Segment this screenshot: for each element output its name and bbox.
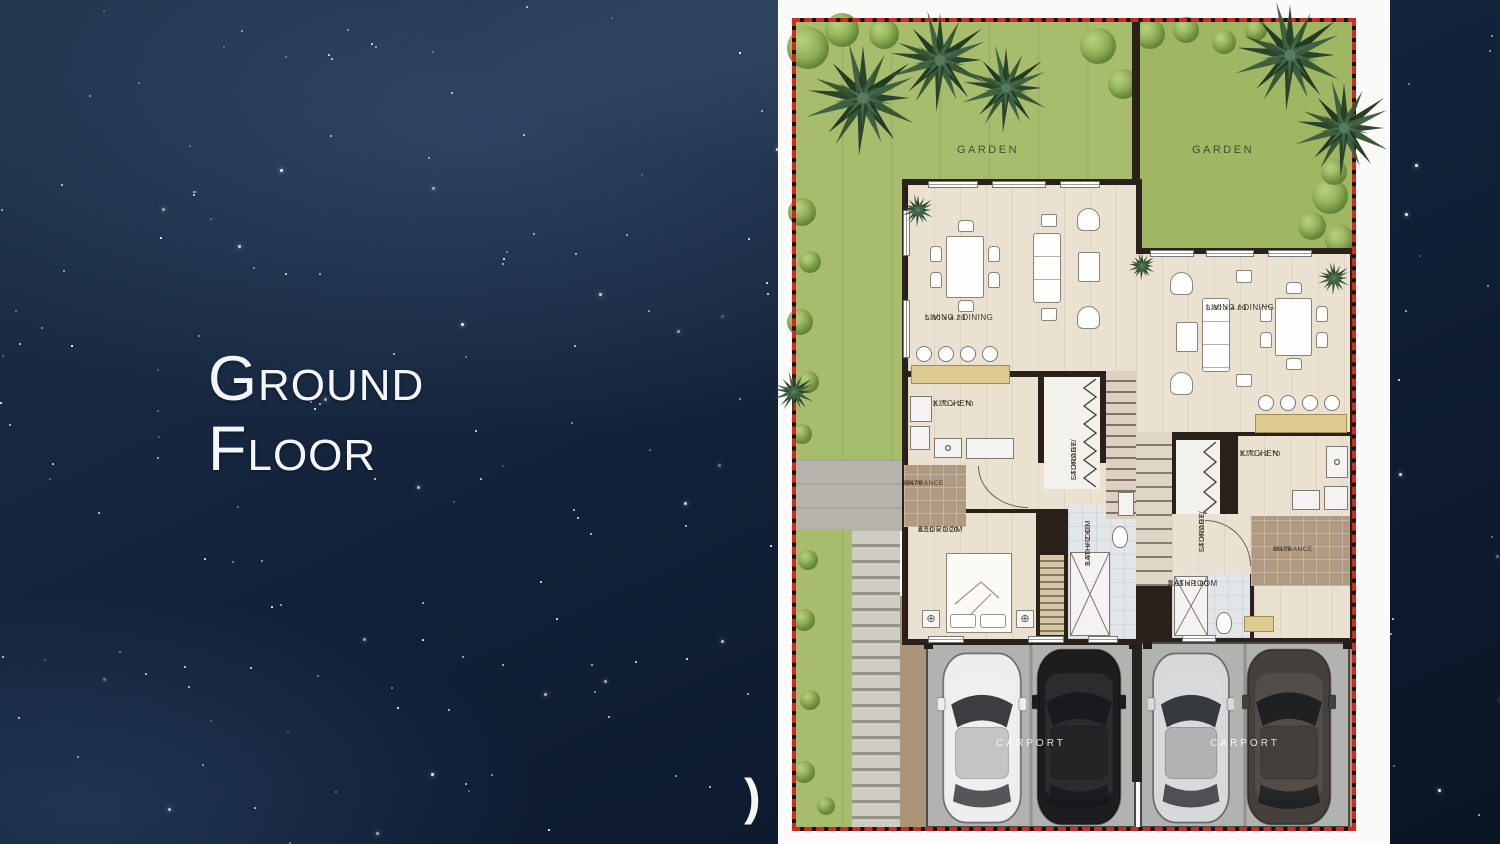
armchair xyxy=(1170,272,1193,295)
sofa-left xyxy=(1033,233,1061,303)
star xyxy=(431,773,434,776)
star xyxy=(204,558,206,560)
armchair xyxy=(1077,306,1100,329)
star xyxy=(44,659,46,661)
star xyxy=(451,92,453,94)
star xyxy=(237,506,239,508)
star xyxy=(721,640,724,643)
star xyxy=(119,651,121,653)
star xyxy=(544,693,547,696)
dining-chair xyxy=(958,300,974,312)
star xyxy=(1405,310,1407,312)
floor-plan: ⊕ ⊕ xyxy=(778,0,1390,844)
star xyxy=(502,664,504,666)
star xyxy=(1491,536,1493,538)
carport-divider-wall xyxy=(1132,642,1142,782)
star xyxy=(1491,35,1493,37)
vanity-right xyxy=(1244,616,1274,632)
star xyxy=(465,783,467,785)
star xyxy=(767,293,769,295)
star xyxy=(188,686,190,688)
star xyxy=(1415,164,1418,167)
entrance-walkway-left xyxy=(795,459,909,531)
window xyxy=(903,210,910,256)
toilet-right xyxy=(1216,612,1232,634)
fridge-left xyxy=(910,396,932,422)
star xyxy=(250,667,252,669)
star xyxy=(677,330,680,333)
star xyxy=(375,46,377,48)
window xyxy=(903,300,910,358)
star xyxy=(98,512,100,514)
star xyxy=(330,135,332,137)
star xyxy=(376,832,379,835)
dining-chair xyxy=(988,272,1000,288)
star xyxy=(626,234,628,236)
garden-lower-left xyxy=(795,529,852,828)
star xyxy=(41,327,43,329)
stray-glyph-fragment: ) xyxy=(744,768,761,826)
star xyxy=(280,604,282,606)
dining-table-left xyxy=(946,236,984,298)
star xyxy=(1419,255,1421,257)
dining-chair xyxy=(930,272,942,288)
star xyxy=(1438,789,1441,792)
star xyxy=(317,675,319,677)
star xyxy=(319,273,321,275)
star xyxy=(371,43,373,45)
window xyxy=(1182,635,1216,642)
bar-stool xyxy=(916,346,932,362)
dining-chair xyxy=(1316,306,1328,322)
kitchen-sink-right xyxy=(1292,490,1320,510)
star xyxy=(1489,50,1491,52)
star xyxy=(506,251,508,253)
dining-chair xyxy=(958,220,974,232)
pillow xyxy=(980,614,1006,628)
star xyxy=(604,680,607,683)
star xyxy=(739,52,741,54)
star xyxy=(103,678,106,681)
star xyxy=(594,691,596,693)
breakfast-bar-left xyxy=(911,365,1010,384)
star xyxy=(391,687,393,689)
window xyxy=(992,181,1046,188)
star xyxy=(2,656,4,658)
armchair xyxy=(1077,208,1100,231)
star xyxy=(721,315,724,318)
star xyxy=(19,343,21,345)
star xyxy=(1496,555,1499,558)
star xyxy=(162,208,165,211)
star xyxy=(1392,618,1394,620)
slide: { "slide": { "title": "Ground\nFloor" },… xyxy=(0,0,1500,844)
star xyxy=(432,187,435,190)
star xyxy=(241,30,243,32)
window xyxy=(1206,250,1254,257)
star xyxy=(599,293,602,296)
star xyxy=(502,263,504,265)
dining-chair xyxy=(1260,332,1272,348)
window xyxy=(928,636,964,643)
bar-stool xyxy=(960,346,976,362)
star xyxy=(1390,633,1392,635)
slide-title: Ground Floor xyxy=(208,344,424,484)
star xyxy=(590,533,592,535)
star xyxy=(468,790,470,792)
bar-stool xyxy=(982,346,998,362)
bar-stool xyxy=(1258,395,1274,411)
window xyxy=(1268,250,1312,257)
side-table xyxy=(1041,308,1057,321)
star xyxy=(1393,765,1395,767)
star xyxy=(635,661,637,663)
star xyxy=(491,774,493,776)
star xyxy=(432,51,434,53)
stove-left xyxy=(934,438,962,458)
star xyxy=(271,606,273,608)
star xyxy=(157,369,159,371)
star xyxy=(202,764,204,766)
star xyxy=(254,807,256,809)
dining-chair xyxy=(1316,332,1328,348)
side-table xyxy=(1236,270,1252,283)
star xyxy=(1487,285,1489,287)
star xyxy=(747,693,749,695)
star xyxy=(540,581,542,583)
star xyxy=(503,258,505,260)
star xyxy=(571,422,573,424)
toilet-left xyxy=(1112,526,1128,548)
breakfast-bar-right xyxy=(1255,414,1347,433)
star xyxy=(103,10,105,12)
star xyxy=(761,110,763,112)
star xyxy=(766,282,768,284)
stove-right xyxy=(1326,446,1348,478)
dining-table-right xyxy=(1275,298,1312,356)
star xyxy=(770,545,772,547)
star xyxy=(480,478,482,480)
star xyxy=(189,145,191,147)
star xyxy=(193,194,195,196)
star xyxy=(52,463,54,465)
star xyxy=(280,169,283,172)
star xyxy=(77,756,79,758)
window xyxy=(1150,250,1194,257)
star xyxy=(184,666,186,668)
star xyxy=(158,436,160,438)
star xyxy=(1478,814,1480,816)
star xyxy=(475,430,477,432)
star xyxy=(556,618,558,620)
star xyxy=(198,335,200,337)
window xyxy=(1060,181,1100,188)
side-table xyxy=(1041,214,1057,227)
star xyxy=(573,509,575,511)
fridge-right xyxy=(1324,486,1348,510)
dining-chair xyxy=(988,246,1000,262)
star xyxy=(748,238,750,240)
star xyxy=(261,560,263,562)
star xyxy=(287,731,289,733)
star xyxy=(591,664,593,666)
star xyxy=(71,345,73,347)
window xyxy=(1088,636,1118,643)
star xyxy=(18,717,20,719)
star xyxy=(574,345,576,347)
star xyxy=(523,134,525,136)
garden-label-right: GARDEN xyxy=(1163,144,1283,156)
room-living-dining-left xyxy=(908,185,1136,371)
nightstand-lamp: ⊕ xyxy=(922,610,940,628)
entrance-paving-left xyxy=(904,465,966,527)
star xyxy=(145,673,147,675)
star xyxy=(193,191,195,193)
star xyxy=(608,716,610,718)
star xyxy=(709,786,711,788)
star xyxy=(428,157,430,159)
star xyxy=(462,656,464,658)
star xyxy=(575,253,577,255)
star xyxy=(157,410,159,412)
star xyxy=(160,237,162,239)
star xyxy=(89,95,91,97)
vanity-left xyxy=(1118,492,1134,516)
window xyxy=(1028,636,1064,643)
star xyxy=(210,720,212,722)
star xyxy=(223,46,225,48)
star xyxy=(49,478,51,480)
star xyxy=(195,191,197,193)
star xyxy=(232,561,234,563)
star xyxy=(253,267,255,269)
star xyxy=(2,355,4,357)
coffee-table-left xyxy=(1078,252,1100,282)
wardrobe-left xyxy=(1040,555,1064,635)
window xyxy=(928,181,978,188)
star xyxy=(331,58,333,60)
star xyxy=(648,310,650,312)
star xyxy=(347,29,349,31)
outdoor-steps-left xyxy=(852,531,900,828)
dining-chair xyxy=(1286,282,1302,294)
star xyxy=(1,209,3,211)
star xyxy=(168,808,171,811)
star xyxy=(238,245,241,248)
star xyxy=(61,184,63,186)
garden-left-lawn xyxy=(795,21,1139,187)
star xyxy=(684,502,687,505)
kitchen-counter-left xyxy=(966,438,1014,459)
star xyxy=(649,449,651,451)
star xyxy=(289,842,291,844)
star xyxy=(526,6,528,8)
kitchen-sink-left xyxy=(910,426,930,450)
star xyxy=(739,398,741,400)
bar-stool xyxy=(938,346,954,362)
star xyxy=(397,707,399,709)
star xyxy=(577,517,579,519)
star xyxy=(63,270,65,272)
garden-right-lawn xyxy=(1139,21,1355,258)
carport-label-right: CARPORT xyxy=(1140,738,1350,749)
star xyxy=(502,465,504,467)
star xyxy=(422,602,424,604)
star xyxy=(363,638,366,641)
star xyxy=(675,775,677,777)
star xyxy=(9,424,11,426)
laundry-shelving-zigzag xyxy=(1082,379,1098,487)
star xyxy=(1398,379,1400,381)
star xyxy=(1405,213,1408,216)
side-table xyxy=(1236,374,1252,387)
stairs-right-unit xyxy=(1136,432,1172,586)
star xyxy=(0,402,2,404)
star xyxy=(533,233,535,235)
star xyxy=(1399,473,1402,476)
star xyxy=(1408,83,1410,85)
car-gray xyxy=(1242,646,1336,828)
carport-label-left: CARPORT xyxy=(926,738,1136,749)
garden-label-left: GARDEN xyxy=(928,144,1048,156)
dining-chair xyxy=(1286,358,1302,370)
garden-left-side-strip xyxy=(795,185,909,461)
star xyxy=(718,464,721,467)
star xyxy=(15,310,17,312)
dining-chair xyxy=(930,246,942,262)
star xyxy=(461,323,464,326)
star xyxy=(465,356,467,358)
star xyxy=(285,56,287,58)
star xyxy=(453,501,455,503)
nightstand-lamp: ⊕ xyxy=(1016,610,1034,628)
star xyxy=(422,639,424,641)
star xyxy=(548,829,550,831)
star xyxy=(335,791,337,793)
star xyxy=(328,54,330,56)
bar-stool xyxy=(1324,395,1340,411)
star xyxy=(611,17,613,19)
star xyxy=(138,82,140,84)
star xyxy=(686,658,688,660)
star xyxy=(685,525,687,527)
armchair xyxy=(1170,372,1193,395)
bar-stool xyxy=(1280,395,1296,411)
star xyxy=(448,709,450,711)
pillow xyxy=(950,614,976,628)
star xyxy=(641,174,643,176)
star xyxy=(210,218,212,220)
coffee-table-right xyxy=(1176,322,1198,352)
star xyxy=(157,457,159,459)
car-black xyxy=(1032,646,1126,828)
star xyxy=(417,486,420,489)
star xyxy=(285,273,287,275)
bar-stool xyxy=(1302,395,1318,411)
